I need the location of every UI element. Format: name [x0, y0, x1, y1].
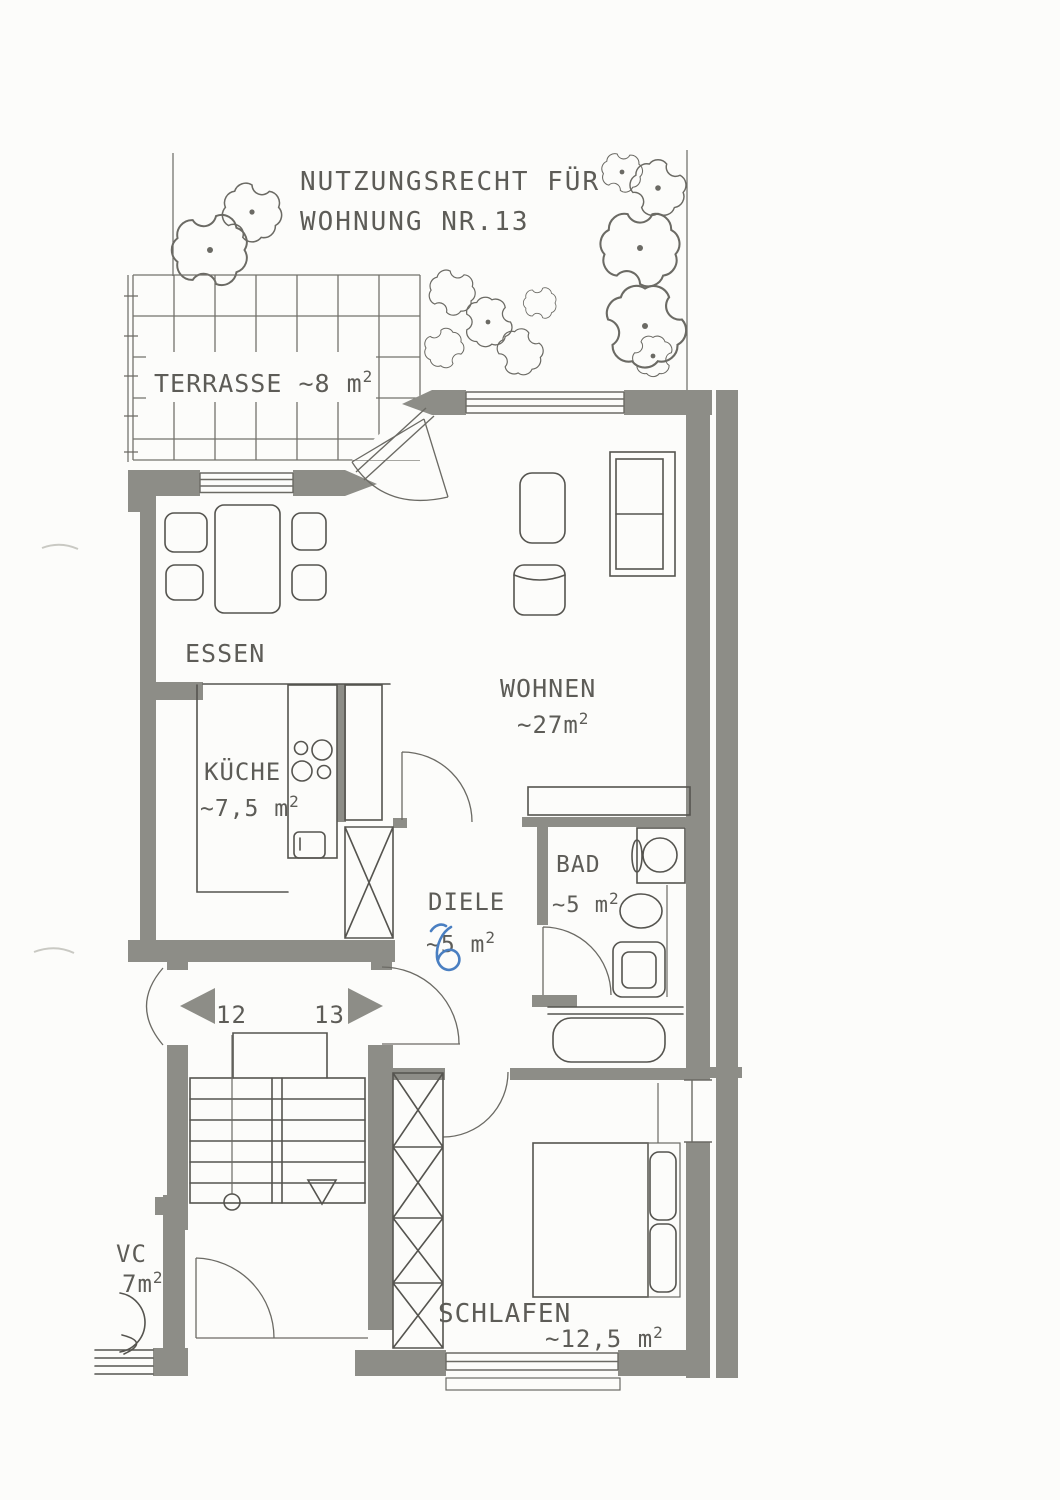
chair	[166, 565, 203, 600]
tree-center-dot	[207, 247, 213, 253]
apartment-number-13: 13	[314, 1001, 345, 1029]
bed	[533, 1143, 648, 1297]
tall-cupboard	[345, 685, 382, 820]
apartment-number-12: 12	[216, 1001, 247, 1029]
wohnen-label: WOHNEN	[500, 674, 596, 703]
kueche-label: KÜCHE	[204, 757, 281, 786]
tree-group-right	[594, 148, 695, 381]
wall-kitchen-bottom	[128, 940, 395, 962]
kitchen-sink	[294, 832, 325, 858]
armchair	[520, 473, 565, 543]
wall-bad-schlafen	[510, 1068, 702, 1080]
apartment13-door-swing	[382, 967, 460, 1044]
plan-title-line1: NUTZUNGSRECHT FÜR	[300, 165, 600, 197]
stove-burner	[318, 766, 331, 779]
scan-artifact	[34, 948, 74, 953]
wall-bad-left	[537, 827, 548, 925]
tree-center-dot	[642, 323, 648, 329]
washbasin-counter	[637, 828, 685, 883]
diele-label: DIELE	[428, 888, 505, 916]
scan-artifact	[42, 545, 78, 549]
arrow-right-icon	[348, 988, 383, 1024]
toilet-cistern-inner	[622, 952, 656, 988]
sideboard	[528, 787, 690, 815]
pillow	[650, 1152, 676, 1220]
window-wohnen	[466, 392, 624, 413]
wc-label: VC	[116, 1240, 147, 1268]
stair-steps	[190, 1099, 365, 1183]
schlafen-door-swing	[443, 1072, 508, 1137]
wc-area: 7m2	[122, 1268, 164, 1298]
wall-left-outer	[140, 496, 156, 958]
apartment12-door-swing	[147, 968, 164, 1045]
floor-plan-drawing: NUTZUNGSRECHT FÜR WOHNUNG NR.13	[0, 0, 1060, 1500]
wall-stub	[393, 818, 407, 828]
terrace: TERRASSE ~8 m2	[124, 275, 426, 462]
door-frame-stub	[167, 962, 188, 970]
stair-walking-line-start	[224, 1194, 240, 1210]
tree-center-dot	[249, 209, 254, 214]
hall-door-swing	[196, 1258, 274, 1338]
wall-cross-stub	[700, 1067, 742, 1078]
chair	[165, 513, 207, 552]
essen-label: ESSEN	[185, 639, 265, 668]
plan-title-line2: WOHNUNG NR.13	[300, 207, 530, 237]
tree-center-dot	[637, 245, 643, 251]
wall-segment	[618, 1350, 702, 1376]
apartment-markers: 12 13	[180, 988, 383, 1029]
door-frame-stub	[371, 962, 392, 970]
duct-shaft-hatch	[345, 827, 393, 938]
stove-burner	[312, 740, 332, 760]
bad-door-swing	[543, 927, 611, 995]
dining-table	[215, 505, 280, 613]
wall-window-gap	[684, 1080, 712, 1142]
stove-burner	[292, 761, 312, 781]
tree-center-dot	[620, 170, 625, 175]
dining-furniture	[165, 505, 326, 613]
wall-segment	[355, 1350, 446, 1376]
wall-bad-bottom-stub	[532, 995, 577, 1007]
kueche-area: ~7,5 m2	[200, 792, 300, 822]
wall-door-jamb-left	[293, 470, 377, 496]
wall-segment	[140, 682, 203, 700]
wall-entry-block	[153, 1348, 188, 1376]
window-essen	[200, 473, 293, 493]
wall-shaft-cap	[393, 1068, 445, 1080]
kitchen-counter-edge	[197, 685, 288, 892]
toilet-bowl	[620, 894, 662, 928]
arrow-left-icon	[180, 988, 215, 1024]
chair	[292, 513, 326, 550]
wall-bad-top	[522, 817, 690, 827]
wohnen-area: ~27m2	[517, 709, 589, 739]
tree-center-dot	[655, 185, 661, 191]
duct-shaft-hatch-tall	[393, 1073, 443, 1348]
wall-stairwell-right	[368, 1045, 393, 1330]
stair-landing-outline	[233, 1033, 327, 1078]
tree-center-dot	[651, 354, 656, 359]
chair	[292, 565, 326, 600]
bathtub-deck-lines	[548, 1007, 683, 1014]
terrace-border-ticks	[124, 296, 138, 452]
pillow	[650, 1224, 676, 1292]
wc-toilet-bowl	[120, 1293, 145, 1352]
window-schlafen	[446, 1353, 618, 1370]
schlafen-area: ~12,5 m2	[545, 1323, 664, 1353]
kitchen-door-swing	[402, 752, 472, 822]
armchair-seat-line	[514, 575, 565, 580]
bush-group-middle	[418, 263, 556, 383]
stairwell	[95, 1033, 368, 1374]
living-furniture	[514, 452, 690, 815]
stove-burner	[295, 742, 308, 755]
bathtub	[553, 1018, 665, 1062]
bad-label: BAD	[556, 852, 601, 878]
terrace-label: TERRASSE ~8 m2	[154, 367, 373, 398]
armchair	[514, 565, 565, 615]
wall-party-outer	[716, 390, 738, 1378]
bad-area: ~5 m2	[552, 889, 620, 918]
wall-party-inner	[686, 390, 710, 1378]
washbasin	[643, 838, 677, 872]
bush-center-dot	[486, 320, 491, 325]
tree-group-left	[172, 173, 291, 285]
scanned-floor-plan: NUTZUNGSRECHT FÜR WOHNUNG NR.13	[0, 0, 1060, 1500]
window-sill	[446, 1378, 620, 1390]
wc-fixtures	[120, 1293, 145, 1354]
